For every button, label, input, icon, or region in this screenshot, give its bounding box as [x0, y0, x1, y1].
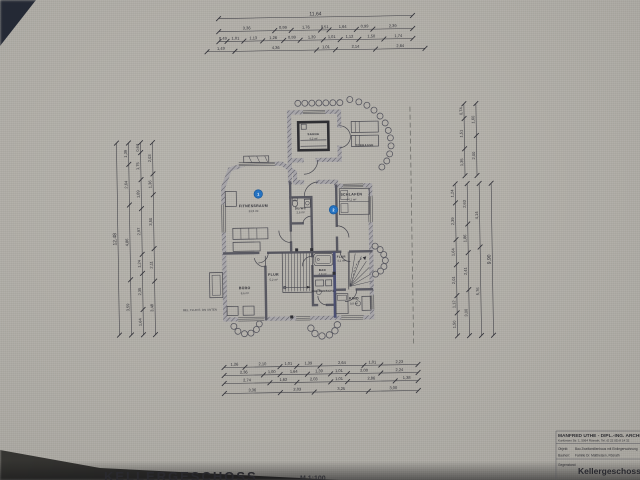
bathtub: [314, 253, 333, 265]
svg-text:1,60: 1,60: [470, 115, 475, 124]
boundary-dashed-line: [410, 107, 414, 345]
svg-text:1,74: 1,74: [394, 33, 403, 38]
svg-text:Bau Zweifamilienhaus mit Einli: Bau Zweifamilienhaus mit Einliegerwohnun…: [575, 447, 638, 451]
svg-text:0,49: 0,49: [219, 36, 228, 41]
staircase-left: [282, 252, 313, 292]
svg-text:2,00: 2,00: [471, 151, 476, 160]
party-wall: [334, 252, 335, 318]
floor-scale: M 1:100: [300, 476, 326, 480]
svg-text:9,8 m²: 9,8 m²: [350, 301, 358, 305]
svg-text:2,36: 2,36: [240, 369, 249, 374]
svg-text:3,00: 3,00: [389, 385, 398, 390]
svg-text:1,26: 1,26: [269, 35, 278, 40]
svg-text:3,25: 3,25: [337, 386, 346, 391]
svg-text:2,41: 2,41: [463, 266, 468, 275]
svg-text:0,74: 0,74: [458, 106, 463, 115]
dim-chain-vertical: 9,90: [485, 181, 496, 338]
plan-marker: 2: [329, 206, 338, 215]
svg-text:2,63: 2,63: [462, 199, 467, 208]
dim-chain-horizontal: 11,64: [216, 10, 415, 21]
svg-text:2,64: 2,64: [396, 43, 405, 48]
svg-text:2,03: 2,03: [147, 154, 152, 163]
svg-text:2,35: 2,35: [137, 287, 142, 296]
plan-marker: 1: [254, 190, 263, 199]
dim-chain-vertical: 1,602,00: [470, 101, 479, 178]
dim-chain-horizontal: 2,361,001,641,391,012,002,24: [222, 367, 421, 378]
svg-text:12,48: 12,48: [112, 233, 118, 246]
svg-text:2,97: 2,97: [136, 227, 141, 236]
dim-chain-vertical: 2,031,363,502,113,48: [147, 140, 158, 337]
svg-text:2,39: 2,39: [450, 217, 455, 226]
dim-chain-vertical: 0,641,751,892,971,242,351,64: [135, 140, 146, 337]
svg-text:1,39: 1,39: [304, 360, 313, 365]
svg-text:0,99: 0,99: [279, 25, 288, 30]
room-label-kind: KIND: [349, 296, 359, 300]
svg-text:2,64: 2,64: [123, 180, 128, 189]
svg-text:1,89: 1,89: [135, 189, 140, 198]
svg-text:2,01: 2,01: [451, 276, 456, 285]
svg-text:2,10: 2,10: [258, 361, 267, 366]
svg-text:2,11: 2,11: [149, 260, 154, 268]
plan-annotation: BEL. FLUR E. DN UNTEN: [183, 308, 217, 313]
svg-text:2,00: 2,00: [360, 368, 369, 373]
svg-text:14,1 m²: 14,1 m²: [346, 197, 356, 201]
svg-text:1,39: 1,39: [308, 34, 317, 39]
svg-text:1,76: 1,76: [302, 24, 311, 29]
svg-text:5,2 m²: 5,2 m²: [269, 278, 277, 282]
dimension-chains: 11,643,360,991,760,511,640,992,390,491,0…: [109, 9, 497, 398]
room-label-sauna: SAUNA: [307, 132, 319, 136]
architect-address: Kurfürsten Str. 1, 5064 Rösrath, Tel. (0…: [558, 439, 630, 443]
floor-label: KELLERGESCHOSS: [104, 469, 258, 480]
svg-text:1,75: 1,75: [135, 161, 140, 170]
svg-text:1,39: 1,39: [123, 149, 128, 158]
svg-text:1,01: 1,01: [335, 376, 344, 381]
svg-text:8,6 m²: 8,6 m²: [241, 291, 249, 295]
fixtures: [207, 121, 381, 320]
svg-text:2,14: 2,14: [352, 44, 361, 49]
svg-text:1,01: 1,01: [231, 36, 240, 41]
dim-chain-horizontal: 3,362,033,253,00: [222, 385, 421, 396]
svg-text:1,64: 1,64: [137, 318, 142, 327]
svg-text:4,86: 4,86: [124, 238, 129, 247]
dim-chain-horizontal: 0,491,011,131,260,991,391,011,121,501,74: [216, 33, 415, 44]
svg-text:3,36: 3,36: [248, 387, 257, 392]
floor-title: KELLERGESCHOSS M 1:100: [104, 469, 326, 480]
svg-text:2,39: 2,39: [389, 23, 398, 28]
svg-text:2,64: 2,64: [338, 360, 347, 365]
dim-chain-vertical: 12,48: [111, 141, 122, 338]
floor-plan-drawing: 11,643,360,991,760,511,640,992,390,491,0…: [109, 9, 497, 398]
room-label-schlafen: SCHLAFEN: [340, 192, 362, 196]
svg-text:3,50: 3,50: [148, 217, 153, 226]
svg-text:1,12: 1,12: [346, 34, 355, 39]
dim-chain-horizontal: 1,494,361,012,142,64: [205, 43, 428, 55]
svg-text:1,50: 1,50: [452, 320, 457, 329]
title-block-subject: Kellergeschoss: [578, 466, 640, 476]
svg-text:Familie Dr. Mattheisen, Rösrat: Familie Dr. Mattheisen, Rösrath: [575, 454, 620, 458]
svg-text:1,01: 1,01: [368, 359, 377, 364]
dim-chain-horizontal: 3,360,991,760,511,640,992,39: [216, 23, 415, 34]
svg-text:0,51: 0,51: [321, 24, 330, 29]
room-label-flur-links: FLUR: [268, 273, 279, 277]
svg-text:Bauherr:: Bauherr:: [558, 454, 570, 458]
svg-text:0,99: 0,99: [361, 24, 370, 29]
svg-text:1,24: 1,24: [137, 259, 142, 268]
room-label-buero: BÜRO: [239, 285, 251, 290]
svg-text:2,86: 2,86: [367, 375, 376, 380]
svg-text:4,1 m²: 4,1 m²: [337, 259, 345, 263]
svg-text:2,03: 2,03: [293, 387, 302, 392]
svg-text:1,01: 1,01: [284, 361, 293, 366]
svg-text:1,26: 1,26: [231, 362, 240, 367]
svg-text:Objekt:: Objekt:: [558, 447, 568, 451]
fitness-equipment: [233, 228, 268, 240]
svg-text:0,64: 0,64: [135, 143, 140, 152]
svg-text:4,14: 4,14: [474, 211, 479, 220]
svg-text:2,74: 2,74: [243, 377, 252, 382]
room-label-terrasse: TERRASSE: [355, 143, 373, 147]
svg-text:1,86: 1,86: [462, 234, 467, 243]
svg-text:1,01: 1,01: [335, 368, 344, 373]
svg-text:1,01: 1,01: [328, 34, 337, 39]
photographed-floorplan: 11,643,360,991,760,511,640,992,390,491,0…: [0, 0, 640, 480]
svg-text:1,12: 1,12: [451, 300, 456, 309]
title-block: MANFRED UTHE - DIPL.-ING. ARCHITEKT Kurf…: [556, 431, 640, 479]
dim-chain-vertical: 1,242,391,642,011,121,50: [449, 181, 460, 338]
svg-text:2,24: 2,24: [395, 367, 404, 372]
svg-text:3,00: 3,00: [463, 308, 468, 317]
svg-text:1,51: 1,51: [459, 129, 464, 138]
svg-text:1,24: 1,24: [450, 189, 455, 198]
svg-text:1,50: 1,50: [367, 33, 376, 38]
svg-text:1,62: 1,62: [279, 377, 288, 382]
svg-text:23,5 m²: 23,5 m²: [249, 209, 259, 213]
svg-text:4,36: 4,36: [272, 45, 281, 50]
svg-text:1,35: 1,35: [459, 158, 464, 167]
svg-text:1,64: 1,64: [450, 248, 455, 257]
svg-text:1,36: 1,36: [147, 180, 152, 189]
svg-text:1,64: 1,64: [290, 369, 299, 374]
svg-text:0,99: 0,99: [288, 35, 297, 40]
dim-chain-vertical: 2,631,862,413,00: [461, 181, 472, 338]
floorplan-sheet: 11,643,360,991,760,511,640,992,390,491,0…: [0, 0, 640, 480]
svg-text:3,59: 3,59: [125, 303, 130, 312]
svg-text:1,64: 1,64: [339, 24, 348, 29]
room-label-hausanschluss: HAUSANSCHL.: [312, 289, 336, 293]
svg-text:9,90: 9,90: [487, 254, 493, 264]
svg-text:1,38: 1,38: [403, 375, 412, 380]
dim-chain-vertical: 0,741,511,35: [458, 101, 467, 178]
svg-text:1,39: 1,39: [315, 368, 324, 373]
svg-text:4,8 m²: 4,8 m²: [318, 272, 326, 276]
svg-text:3,36: 3,36: [243, 25, 252, 30]
svg-text:1,49: 1,49: [217, 46, 226, 51]
svg-text:1,01: 1,01: [322, 44, 331, 49]
dim-chain-vertical: 1,392,644,863,59: [123, 141, 134, 338]
svg-text:4,2 m²: 4,2 m²: [309, 137, 317, 141]
staircase-right-winder: [348, 251, 372, 289]
svg-text:Gegenstand:: Gegenstand:: [558, 463, 576, 467]
light-well: [210, 273, 223, 298]
svg-text:11,64: 11,64: [309, 11, 321, 17]
svg-text:3,48: 3,48: [149, 303, 154, 312]
svg-text:2,23: 2,23: [395, 359, 404, 364]
svg-text:5,76: 5,76: [475, 287, 480, 296]
dim-chain-vertical: 4,145,76: [473, 181, 484, 338]
svg-text:1,00: 1,00: [268, 369, 277, 374]
svg-text:1,13: 1,13: [249, 35, 258, 40]
svg-text:2,03: 2,03: [310, 376, 319, 381]
room-label-fitness: FITNESSRAUM: [239, 204, 268, 208]
svg-text:2,6 m²: 2,6 m²: [296, 210, 304, 214]
